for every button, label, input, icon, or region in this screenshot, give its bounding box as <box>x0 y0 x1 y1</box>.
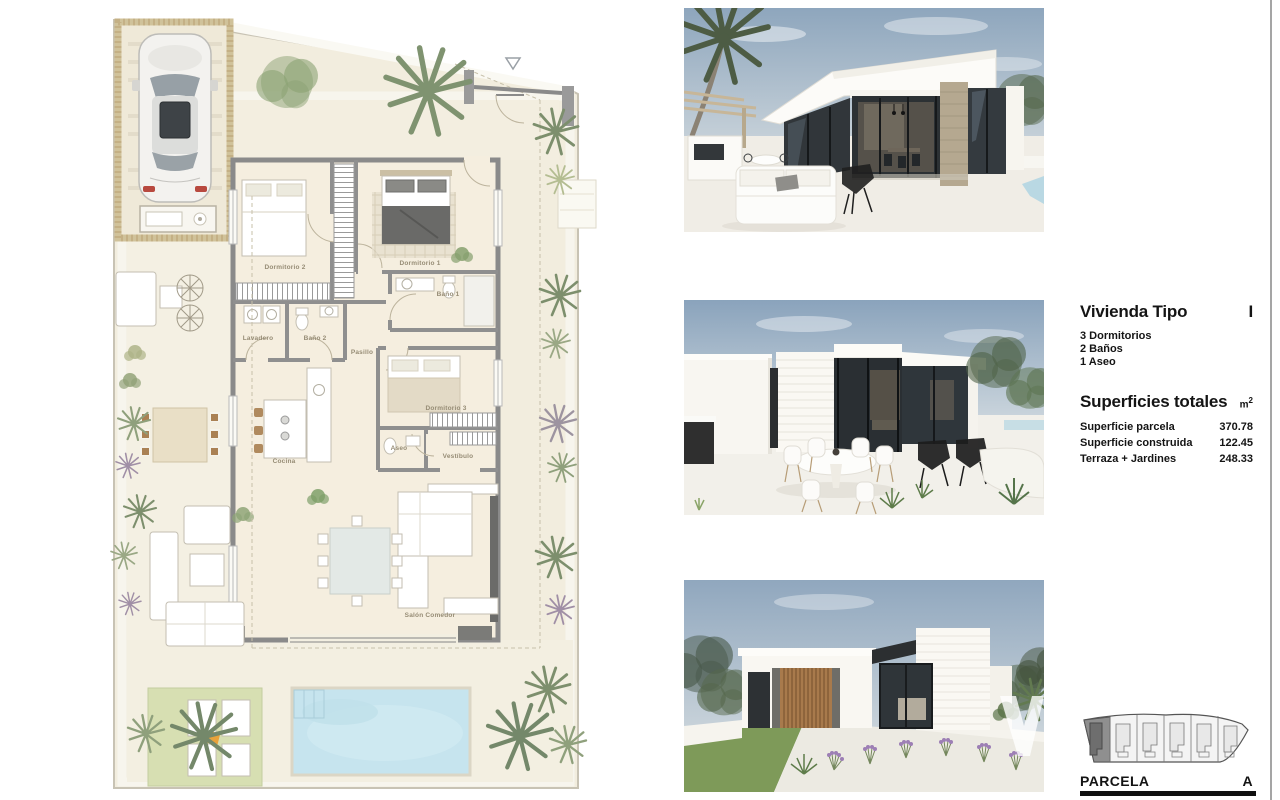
areas-heading: Superficies totales <box>1080 392 1227 412</box>
room-label-dormitorio-2: Dormitorio 2 <box>264 264 305 271</box>
swimming-pool <box>292 688 470 775</box>
area-label: Superficie construida <box>1080 437 1192 449</box>
area-row-parcela: Superficie parcela 370.78 <box>1080 421 1253 433</box>
vertical-divider <box>1270 0 1272 800</box>
parcel-label: PARCELA <box>1080 773 1149 789</box>
feature-bedrooms: 3 Dormitorios <box>1080 330 1152 343</box>
room-label-bano-2: Baño 2 <box>304 335 327 342</box>
type-value: I <box>1248 302 1253 322</box>
feature-bathrooms: 2 Baños <box>1080 343 1152 356</box>
room-label-cocina: Cocina <box>273 458 296 465</box>
area-value: 122.45 <box>1219 437 1253 449</box>
type-title: Vivienda Tipo <box>1080 302 1187 322</box>
area-label: Terraza + Jardines <box>1080 453 1176 465</box>
feature-toilet: 1 Aseo <box>1080 356 1152 369</box>
area-value: 370.78 <box>1219 421 1253 433</box>
parcel-underline <box>1080 791 1256 796</box>
areas-unit: m2 <box>1240 396 1253 410</box>
parcel-value: A <box>1242 773 1253 789</box>
room-label-vestibulo: Vestíbulo <box>443 453 474 460</box>
room-label-dormitorio-3: Dormitorio 3 <box>425 405 466 412</box>
area-row-terraza: Terraza + Jardines 248.33 <box>1080 453 1253 465</box>
room-label-lavadero: Lavadero <box>243 335 274 342</box>
render-photo-terrace <box>684 300 1044 515</box>
area-row-construida: Superficie construida 122.45 <box>1080 437 1253 449</box>
room-label-aseo: Aseo <box>391 445 408 452</box>
floor-plan: Dormitorio 2 Dormitorio 1 Baño 1 Lavader… <box>0 0 660 800</box>
room-label-dormitorio-1: Dormitorio 1 <box>399 260 440 267</box>
parcel-row: PARCELA A <box>1080 773 1253 789</box>
carport <box>118 22 230 238</box>
type-heading-row: Vivienda Tipo I <box>1080 302 1253 322</box>
car-top-view <box>132 34 218 202</box>
room-label-salon-comedor: Salón Comedor <box>405 612 456 619</box>
feature-list: 3 Dormitorios 2 Baños 1 Aseo <box>1080 330 1152 369</box>
areas-heading-row: Superficies totales m2 <box>1080 392 1253 412</box>
room-label-bano-1: Baño 1 <box>437 291 460 298</box>
area-value: 248.33 <box>1219 453 1253 465</box>
area-label: Superficie parcela <box>1080 421 1175 433</box>
render-photo-front <box>684 8 1044 232</box>
room-label-pasillo: Pasillo <box>351 349 373 356</box>
info-panel: Vivienda Tipo I 3 Dormitorios 2 Baños 1 … <box>1080 0 1253 800</box>
parcel-site-map <box>1080 710 1252 768</box>
render-photo-side <box>684 580 1044 792</box>
north-triangle-marker <box>506 58 520 69</box>
